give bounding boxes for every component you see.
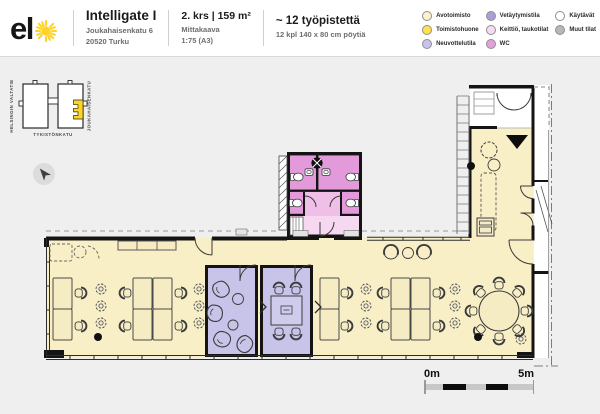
desk-cluster — [320, 278, 339, 340]
scale-track — [424, 384, 534, 390]
scale-end-label: 5m — [518, 368, 534, 380]
desk-cluster — [53, 278, 72, 340]
sideboard — [118, 241, 176, 250]
coat-stand — [481, 142, 497, 158]
scale-start-label: 0m — [424, 368, 440, 380]
meeting-table — [271, 296, 302, 325]
stairwell-strip — [534, 85, 549, 358]
floor-plan-viewer: el Intelligate I Joukahaisenkatu 6 205 — [0, 0, 600, 414]
desk-cluster — [133, 278, 152, 340]
column — [474, 333, 482, 341]
vestibule-area — [470, 88, 533, 128]
printer — [477, 218, 494, 236]
column — [467, 162, 475, 170]
round-table — [479, 291, 519, 331]
scale-bar: 0m 5m — [424, 368, 534, 390]
column — [94, 333, 102, 341]
desk-cluster — [391, 278, 410, 340]
floor-plan — [0, 0, 600, 414]
